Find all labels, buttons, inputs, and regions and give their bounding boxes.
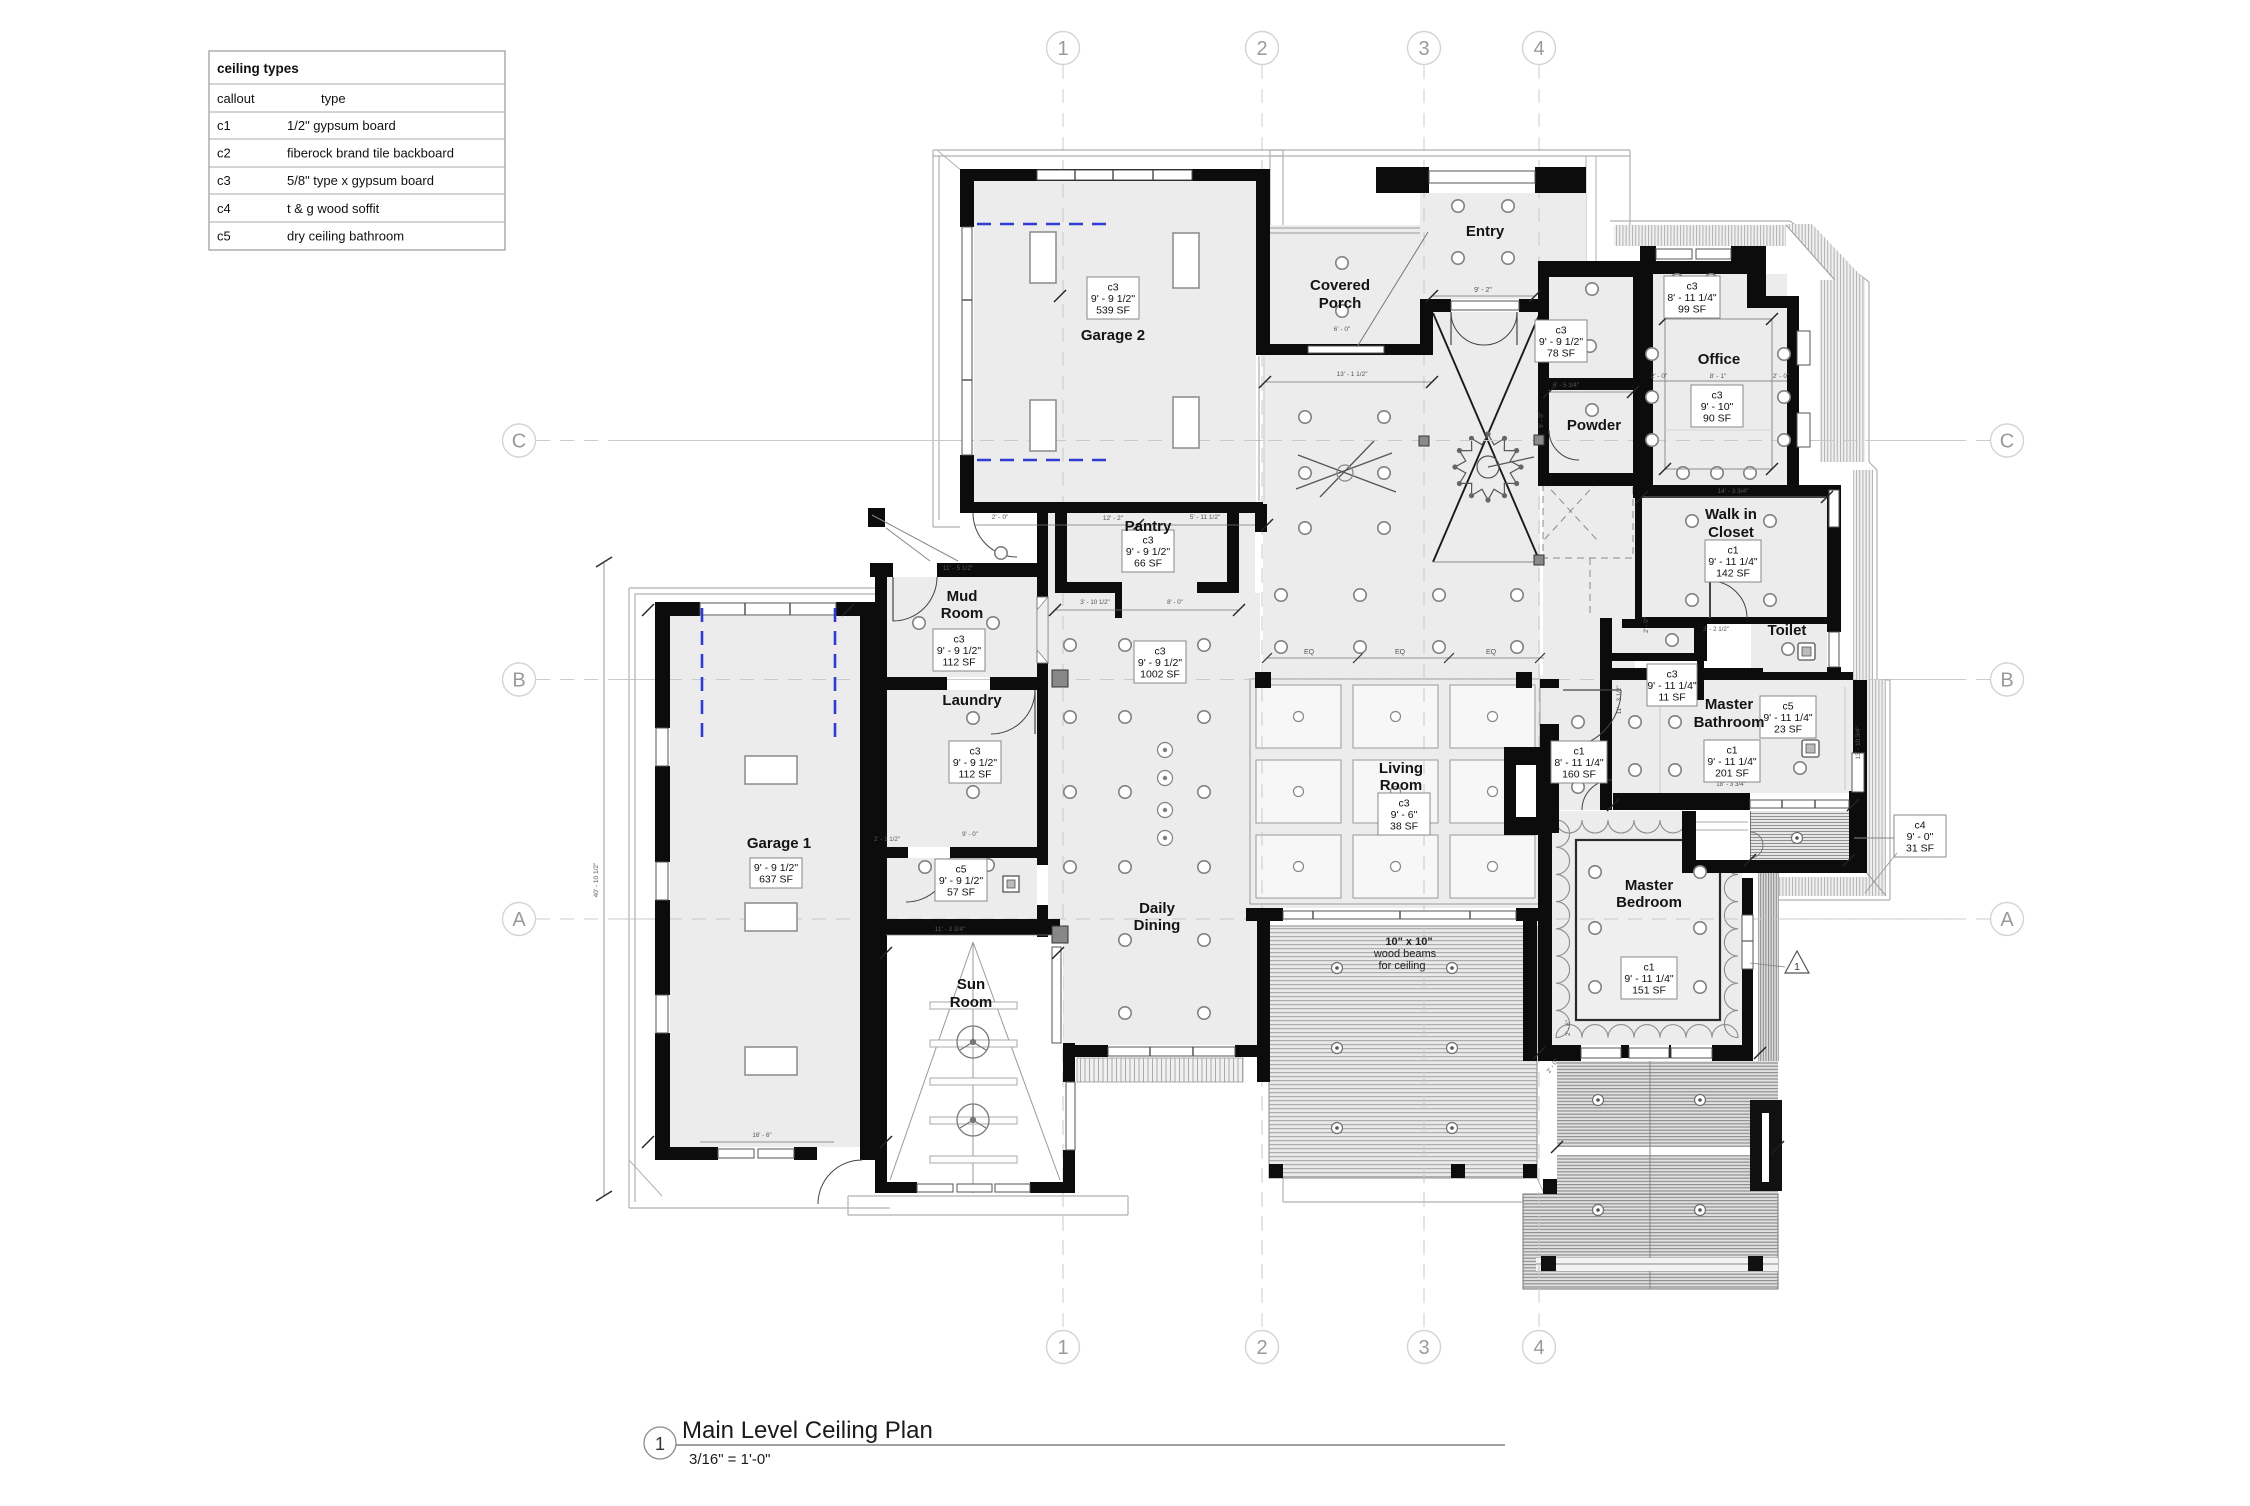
svg-text:c3: c3 xyxy=(1154,645,1165,657)
svg-text:C: C xyxy=(2000,431,2014,453)
svg-text:99 SF: 99 SF xyxy=(1678,303,1706,315)
svg-text:callout: callout xyxy=(217,91,255,106)
svg-text:112 SF: 112 SF xyxy=(942,656,975,668)
svg-text:2' - 0": 2' - 0" xyxy=(1643,617,1650,633)
svg-text:1: 1 xyxy=(1057,1337,1068,1359)
svg-text:c3: c3 xyxy=(1555,324,1566,336)
svg-text:11 SF: 11 SF xyxy=(1658,691,1685,703)
svg-text:c3: c3 xyxy=(217,173,231,188)
svg-text:c1: c1 xyxy=(1727,544,1738,556)
svg-text:Master: Master xyxy=(1705,696,1754,713)
svg-text:1: 1 xyxy=(1794,962,1800,973)
svg-text:38 SF: 38 SF xyxy=(1390,820,1418,832)
svg-text:9' - 9 1/2": 9' - 9 1/2" xyxy=(937,645,982,657)
svg-text:40' - 10 1/2": 40' - 10 1/2" xyxy=(593,862,600,897)
svg-text:Laundry: Laundry xyxy=(942,692,1002,709)
svg-text:2' - 0": 2' - 0" xyxy=(1773,373,1790,380)
svg-text:fiberock brand tile backboard: fiberock brand tile backboard xyxy=(287,146,454,161)
svg-text:6' - 0": 6' - 0" xyxy=(1334,326,1351,333)
svg-text:Covered: Covered xyxy=(1310,277,1370,294)
svg-text:142 SF: 142 SF xyxy=(1716,567,1750,579)
svg-text:dry ceiling bathroom: dry ceiling bathroom xyxy=(287,228,404,243)
svg-text:c3: c3 xyxy=(953,633,964,645)
svg-text:c2: c2 xyxy=(217,146,231,161)
svg-text:1: 1 xyxy=(1057,38,1068,60)
svg-text:9' - 9 1/2": 9' - 9 1/2" xyxy=(953,757,998,769)
svg-text:23 SF: 23 SF xyxy=(1774,723,1802,735)
svg-text:11' - 3 3/4": 11' - 3 3/4" xyxy=(935,926,966,933)
svg-text:9' - 6": 9' - 6" xyxy=(1391,809,1418,821)
svg-text:8' - 11 1/4": 8' - 11 1/4" xyxy=(1554,757,1604,769)
svg-text:Office: Office xyxy=(1698,351,1741,368)
svg-text:Sun: Sun xyxy=(957,976,985,993)
svg-text:5/8" type x gypsum board: 5/8" type x gypsum board xyxy=(287,173,434,188)
svg-text:2' - 0": 2' - 0" xyxy=(1651,373,1668,380)
svg-text:c5: c5 xyxy=(1782,700,1793,712)
svg-text:B: B xyxy=(2000,670,2013,692)
svg-text:Dining: Dining xyxy=(1134,917,1181,934)
svg-text:2' - 6": 2' - 6" xyxy=(1565,1020,1572,1036)
svg-text:c1: c1 xyxy=(217,118,231,133)
svg-text:8' - 1": 8' - 1" xyxy=(1710,373,1727,380)
svg-text:90 SF: 90 SF xyxy=(1703,412,1731,424)
svg-text:B: B xyxy=(512,670,525,692)
svg-text:637 SF: 637 SF xyxy=(759,874,793,886)
svg-text:for ceiling: for ceiling xyxy=(1378,960,1425,972)
svg-text:EQ: EQ xyxy=(1395,649,1406,656)
svg-text:c5: c5 xyxy=(217,228,231,243)
svg-text:Living: Living xyxy=(1379,760,1423,777)
svg-text:9' - 9 1/2": 9' - 9 1/2" xyxy=(939,875,984,887)
svg-text:9' - 9 1/2": 9' - 9 1/2" xyxy=(1091,293,1136,305)
svg-text:Bathroom: Bathroom xyxy=(1694,714,1765,731)
svg-text:201 SF: 201 SF xyxy=(1715,767,1749,779)
svg-text:9' - 9 1/2": 9' - 9 1/2" xyxy=(1539,336,1584,348)
svg-text:112 SF: 112 SF xyxy=(958,768,991,780)
svg-text:c3: c3 xyxy=(1686,280,1697,292)
svg-text:Room: Room xyxy=(950,994,993,1011)
svg-text:4: 4 xyxy=(1533,1337,1544,1359)
svg-text:9' - 0": 9' - 0" xyxy=(962,831,978,838)
svg-text:A: A xyxy=(2000,909,2014,931)
svg-text:type: type xyxy=(321,91,346,106)
svg-text:78 SF: 78 SF xyxy=(1547,347,1575,359)
svg-text:3' - 10 1/2": 3' - 10 1/2" xyxy=(1080,599,1110,606)
svg-text:5' - 11 1/2": 5' - 11 1/2" xyxy=(1190,514,1221,521)
svg-text:Master: Master xyxy=(1625,877,1674,894)
svg-text:10" x 10": 10" x 10" xyxy=(1385,936,1432,948)
svg-text:12' - 2": 12' - 2" xyxy=(1103,515,1124,522)
svg-text:Room: Room xyxy=(941,605,984,622)
svg-text:Walk in: Walk in xyxy=(1705,506,1757,523)
svg-text:9' - 11 1/4": 9' - 11 1/4" xyxy=(1763,712,1813,724)
svg-text:C: C xyxy=(512,431,526,453)
svg-text:539 SF: 539 SF xyxy=(1096,304,1130,316)
svg-text:9' - 9 1/2": 9' - 9 1/2" xyxy=(1138,657,1183,669)
svg-text:Main Level Ceiling Plan: Main Level Ceiling Plan xyxy=(682,1417,933,1444)
svg-text:2: 2 xyxy=(1256,38,1267,60)
svg-text:9' - 0": 9' - 0" xyxy=(1907,831,1934,843)
svg-text:160 SF: 160 SF xyxy=(1562,768,1596,780)
svg-text:t & g wood soffit: t & g wood soffit xyxy=(287,201,380,216)
svg-text:1: 1 xyxy=(655,1434,665,1454)
svg-text:9' - 10": 9' - 10" xyxy=(1701,401,1734,413)
svg-text:3' - 2 1/2": 3' - 2 1/2" xyxy=(1703,626,1729,633)
svg-text:EQ: EQ xyxy=(1304,649,1315,656)
svg-text:31 SF: 31 SF xyxy=(1906,842,1934,854)
svg-text:3: 3 xyxy=(1418,1337,1429,1359)
svg-text:66 SF: 66 SF xyxy=(1134,557,1162,569)
svg-text:13' - 1 1/2": 13' - 1 1/2" xyxy=(1336,371,1368,378)
svg-text:16' - 6": 16' - 6" xyxy=(752,1132,771,1139)
svg-text:2' - 1 1/2": 2' - 1 1/2" xyxy=(874,836,900,843)
svg-text:Pantry: Pantry xyxy=(1125,518,1172,535)
svg-text:Porch: Porch xyxy=(1319,295,1362,312)
svg-text:Garage 2: Garage 2 xyxy=(1081,327,1145,344)
svg-text:151 SF: 151 SF xyxy=(1632,984,1666,996)
svg-text:9' - 9 1/2": 9' - 9 1/2" xyxy=(754,862,799,874)
svg-text:8' - 11 1/4": 8' - 11 1/4" xyxy=(1667,292,1717,304)
svg-text:11' - 3 1/2": 11' - 3 1/2" xyxy=(1616,685,1623,714)
svg-text:Garage 1: Garage 1 xyxy=(747,835,811,852)
svg-text:57 SF: 57 SF xyxy=(947,886,975,898)
svg-text:Bedroom: Bedroom xyxy=(1616,894,1682,911)
svg-text:9' - 2": 9' - 2" xyxy=(1474,287,1492,294)
svg-text:Toilet: Toilet xyxy=(1768,622,1807,639)
svg-text:c3: c3 xyxy=(1711,389,1722,401)
svg-text:Entry: Entry xyxy=(1466,223,1505,240)
svg-text:14' - 3 3/4": 14' - 3 3/4" xyxy=(1717,488,1749,495)
svg-text:A: A xyxy=(512,909,526,931)
svg-text:11' - 5 1/2": 11' - 5 1/2" xyxy=(943,565,974,572)
svg-text:1002 SF: 1002 SF xyxy=(1140,668,1180,680)
svg-text:c3: c3 xyxy=(969,745,980,757)
svg-text:c3: c3 xyxy=(1142,534,1153,546)
svg-text:Mud: Mud xyxy=(947,588,978,605)
svg-text:c3: c3 xyxy=(1398,797,1409,809)
svg-text:c5: c5 xyxy=(955,863,966,875)
svg-text:wood beams: wood beams xyxy=(1373,948,1437,960)
svg-text:EQ: EQ xyxy=(1486,649,1497,656)
svg-text:c1: c1 xyxy=(1573,745,1584,757)
svg-text:c4: c4 xyxy=(217,201,231,216)
svg-text:4: 4 xyxy=(1533,38,1544,60)
svg-text:3/16" = 1'-0": 3/16" = 1'-0" xyxy=(689,1451,770,1468)
svg-text:c1: c1 xyxy=(1726,744,1737,756)
svg-text:9' - 9 1/2": 9' - 9 1/2" xyxy=(1126,546,1171,558)
svg-text:Daily: Daily xyxy=(1139,900,1176,917)
svg-text:c3: c3 xyxy=(1666,668,1677,680)
svg-text:9' - 11 1/4": 9' - 11 1/4" xyxy=(1647,680,1697,692)
svg-text:8' - 0": 8' - 0" xyxy=(1167,599,1183,606)
svg-text:c3: c3 xyxy=(1107,281,1118,293)
svg-text:c4: c4 xyxy=(1914,819,1925,831)
svg-text:9' - 11 1/4": 9' - 11 1/4" xyxy=(1707,756,1757,768)
svg-text:Closet: Closet xyxy=(1708,524,1754,541)
svg-text:2: 2 xyxy=(1256,1337,1267,1359)
svg-text:ceiling types: ceiling types xyxy=(217,61,299,76)
svg-text:9' - 0": 9' - 0" xyxy=(1538,412,1545,428)
svg-text:6' - 5 3/4": 6' - 5 3/4" xyxy=(1553,382,1579,389)
svg-text:13' - 10 3/4": 13' - 10 3/4" xyxy=(1855,727,1862,760)
svg-text:c1: c1 xyxy=(1643,961,1654,973)
svg-text:1/2" gypsum board: 1/2" gypsum board xyxy=(287,118,396,133)
svg-text:Room: Room xyxy=(1380,777,1423,794)
svg-text:9' - 11 1/4": 9' - 11 1/4" xyxy=(1708,556,1758,568)
svg-text:3: 3 xyxy=(1418,38,1429,60)
svg-text:2' - 0": 2' - 0" xyxy=(992,514,1009,521)
svg-text:Powder: Powder xyxy=(1567,417,1621,434)
svg-text:9' - 11 1/4": 9' - 11 1/4" xyxy=(1624,973,1674,985)
